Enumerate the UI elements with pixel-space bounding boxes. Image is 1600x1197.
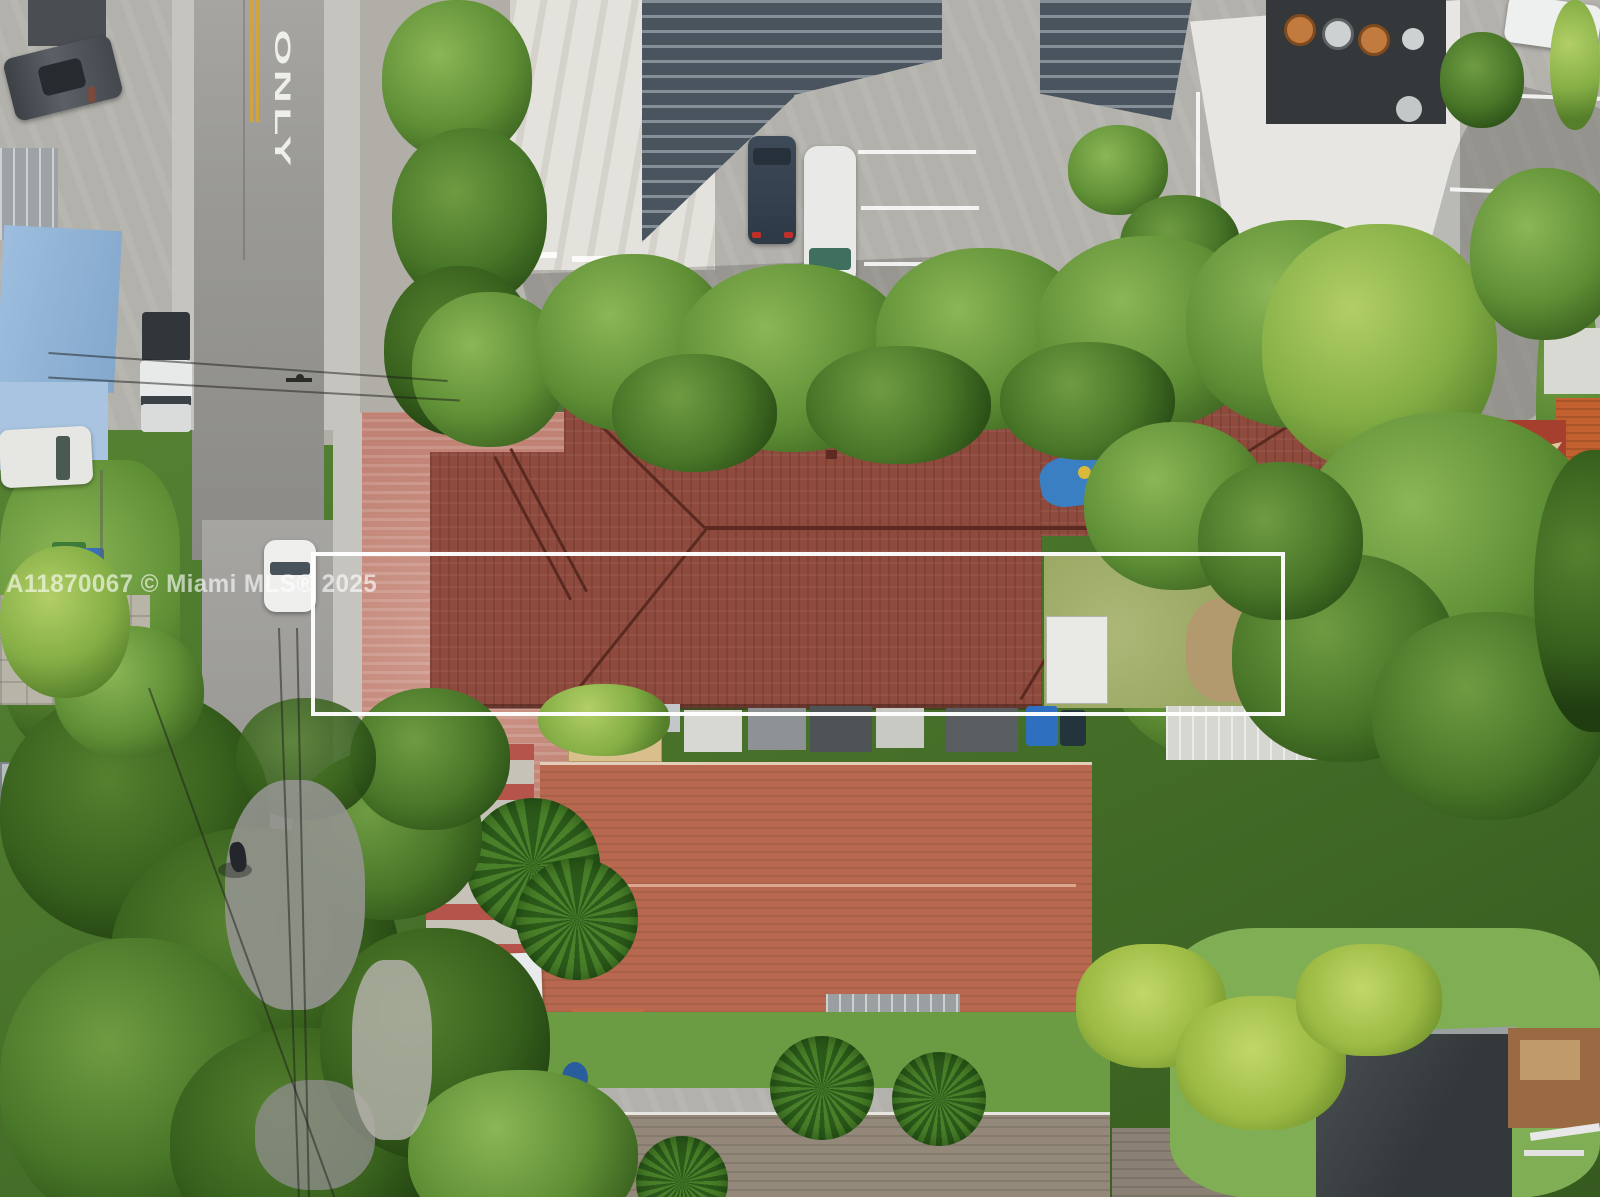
sunlit-road-patch [225, 780, 365, 1010]
parked-white-car-left [0, 426, 93, 489]
car-windshield [56, 436, 70, 480]
neighbor-roof-ridge [556, 884, 1076, 887]
pickup-hood [141, 404, 191, 432]
pickup-truck-cab [140, 360, 192, 400]
satellite-dish [1396, 96, 1422, 122]
sheathing-patch [1520, 1040, 1580, 1080]
storage-box [684, 710, 742, 752]
sunlit-sidewalk-patch [352, 960, 432, 1140]
sidewalk-east [324, 0, 360, 430]
utility-pole [296, 374, 304, 382]
palm-tree [516, 858, 638, 980]
tree-canopy [806, 346, 991, 464]
blue-warehouse-roof [0, 225, 122, 393]
taillight [784, 232, 793, 238]
rooftop-fan [1284, 14, 1316, 46]
aerial-photo-scene: ONLY [0, 0, 1600, 1197]
tree-canopy [612, 354, 777, 472]
palm-tree [892, 1052, 986, 1146]
parking-stripe [861, 206, 979, 210]
taillight [752, 232, 761, 238]
property-boundary [311, 552, 1285, 716]
rooftop-fan [1322, 18, 1354, 50]
roof-main-ridge [705, 526, 1129, 530]
palm-tree [770, 1036, 874, 1140]
power-line [243, 0, 245, 260]
white-framing [1524, 1150, 1584, 1156]
suv-windshield [753, 148, 791, 165]
grass-strip [1550, 0, 1600, 130]
roof-vent [826, 450, 837, 459]
pickup-truck-bed [142, 312, 190, 362]
road-marking-only: ONLY [252, 37, 312, 163]
banana-plants [1296, 944, 1442, 1056]
tree-canopy [1470, 168, 1600, 340]
pedestrian [87, 86, 96, 103]
mls-watermark: A11870067 © Miami MLS® 2025 [6, 570, 377, 599]
parking-stripe [858, 150, 976, 154]
rooftop-fan [1358, 24, 1390, 56]
satellite-dish [1402, 28, 1424, 50]
tree-canopy [0, 546, 130, 698]
tree-canopy [1440, 32, 1524, 128]
